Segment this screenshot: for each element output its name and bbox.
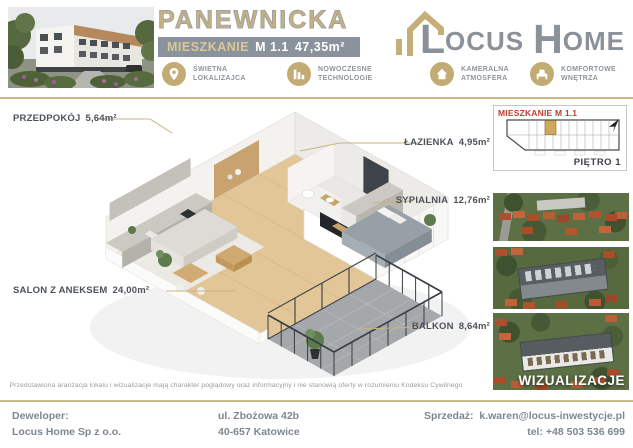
house-icon [430, 62, 454, 86]
logo-letter-h: H [533, 19, 563, 59]
feature-interiors: KOMFORTOWEWNĘTRZA [530, 62, 616, 86]
aerial-photo-2 [493, 247, 629, 309]
feature-line2: WNĘTRZA [561, 75, 598, 82]
address-line1: ul. Zbożowa 42b [218, 408, 300, 424]
address-line2: 40-657 Katowice [218, 424, 300, 440]
room-label-salon: SALON Z ANEKSEM24,00m² [13, 285, 149, 296]
unit-bar: MIESZKANIEM 1.147,35m² [158, 37, 360, 57]
feature-location: ŚWIETNALOKALIZAJCA [162, 62, 246, 86]
floor-schematic [497, 118, 623, 160]
unit-bar-label: MIESZKANIE [167, 40, 249, 54]
developer-label: Deweloper: [12, 408, 121, 424]
feature-atmosphere: KAMERALNAATMOSFERA [430, 62, 509, 86]
building-photo-art [8, 7, 154, 88]
feature-line2: LOKALIZAJCA [193, 75, 246, 82]
developer-name: Locus Home Sp z o.o. [12, 424, 121, 440]
address-block: ul. Zbożowa 42b 40-657 Katowice [218, 408, 300, 440]
feature-technology: NOWOCZESNETECHNOLOGIE [287, 62, 373, 86]
room-label-balkon: BALKON8,64m² [412, 321, 490, 332]
feature-line1: NOWOCZESNE [318, 66, 372, 73]
floor-number: PIĘTRO 1 [574, 157, 621, 168]
title-block: PANEWNICKA MIESZKANIEM 1.147,35m² [158, 6, 373, 57]
feature-line1: KOMFORTOWE [561, 66, 616, 73]
bar-chart-icon [287, 62, 311, 86]
feature-line2: ATMOSFERA [461, 75, 508, 82]
logo-letter-l: L [420, 19, 445, 59]
room-label-przedpokoj: PRZEDPOKÓJ5,64m² [13, 113, 117, 124]
sales-block: Sprzedaż: k.waren@locus-inwestycje.pl te… [424, 408, 625, 440]
highlighted-unit [545, 121, 556, 135]
building-photo [8, 7, 154, 88]
developer-block: Deweloper: Locus Home Sp z o.o. [12, 408, 121, 440]
aerial-photo-1 [493, 193, 629, 241]
feature-line1: ŚWIETNA [193, 66, 227, 73]
unit-area: 47,35m² [295, 40, 345, 54]
sales-label: Sprzedaż: [424, 410, 474, 422]
visuals-label: WIZUALIZACJE [493, 373, 625, 388]
plan-box-title: MIESZKANIE M 1.1 [498, 108, 577, 118]
room-label-sypialnia: SYPIALNIA12,76m² [396, 195, 490, 206]
logo-ome: OME [563, 24, 625, 59]
flyer-page: PANEWNICKA MIESZKANIEM 1.147,35m² LOCUSH… [0, 0, 633, 448]
disclaimer-text: Przedstawiona aranżacja lokalu i wizuali… [0, 382, 472, 389]
unit-number: M 1.1 [255, 40, 289, 54]
project-title: PANEWNICKA [158, 6, 373, 34]
location-pin-icon [162, 62, 186, 86]
armchair-icon [530, 62, 554, 86]
logo-ocus: OCUS [445, 24, 524, 59]
sales-email: k.waren@locus-inwestycje.pl [479, 410, 625, 422]
locus-home-logo: LOCUSHOME [394, 7, 625, 59]
floor-location-box: MIESZKANIE M 1.1 PIĘTRO 1 [493, 105, 627, 171]
feature-line1: KAMERALNA [461, 66, 509, 73]
footer: Deweloper: Locus Home Sp z o.o. ul. Zboż… [0, 402, 633, 448]
room-label-lazienka: ŁAZIENKA4,95m² [404, 137, 490, 148]
feature-line2: TECHNOLOGIE [318, 75, 373, 82]
sales-phone: tel: +48 503 536 699 [424, 424, 625, 440]
